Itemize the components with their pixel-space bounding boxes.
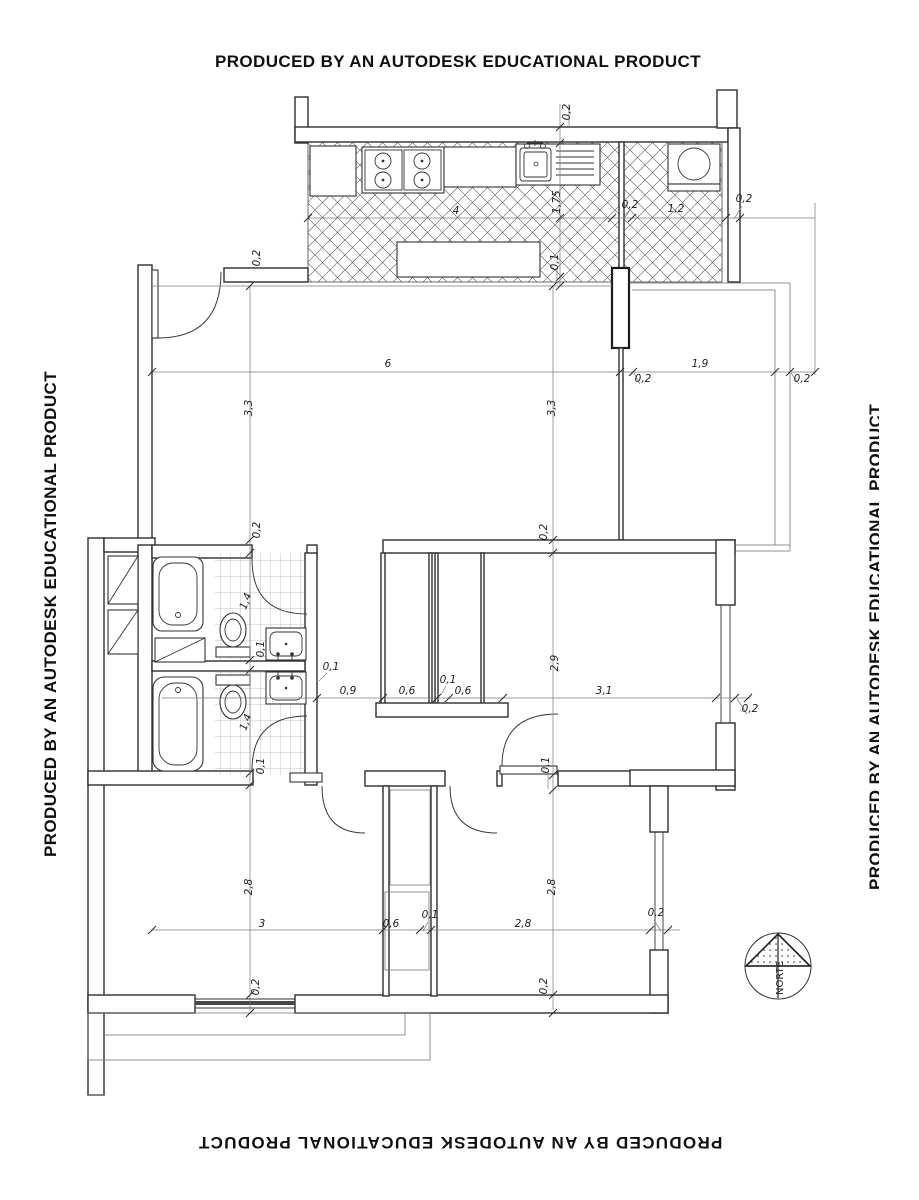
closet-compartment-bottom [385,892,429,970]
dim-label: 2,8 [515,918,532,930]
pillar [612,268,629,348]
bedroom1-top-wall [383,540,735,553]
bedroom1-closet-mid1 [429,553,432,705]
dim-label: 0,2 [250,978,262,995]
bedroom1-window [721,605,730,723]
bedroom-right-door [450,786,497,833]
dim-label: 4 [453,205,460,217]
kitchen-top-wall [295,127,728,142]
dim-label: 0,1 [422,909,439,921]
sink [266,628,306,660]
dim-label: 3,1 [596,685,613,697]
dim-label: 0,1 [540,757,552,774]
dim-label: 3,3 [243,400,255,417]
bedroom-left-door [290,773,365,833]
dim-label: 0,6 [455,685,472,697]
closet-column-left [383,786,389,996]
hallway-left-wall [305,553,317,785]
floor-plan-svg: 0,2 4 1,75 0,2 1,2 0,2 0,1 0,2 6 0,2 1,9… [0,0,919,1200]
bedroom1-closet-mid2 [435,553,438,705]
living-right-thin-wall [619,348,623,540]
kitchen-right-wall [728,128,740,282]
dim-label: 0,1 [255,641,267,658]
dim-label: 3 [259,918,266,930]
dim-label: 0,2 [742,703,759,715]
closet-compartment-top [390,790,430,885]
washing-machine [668,144,720,191]
dim-label: 6 [385,358,392,370]
dim-label: 0,2 [561,103,573,120]
bathtub [153,677,203,771]
service-shafts [108,556,138,654]
kitchen-counter-left [310,146,356,196]
dim-label: 0,6 [399,685,416,697]
closet-column-right [431,786,437,996]
bottom-left-window [195,999,295,1008]
bedroom1-closet-shelf [376,703,508,717]
dim-label: 0,1 [549,254,561,271]
kitchen-partition-wall [619,142,624,282]
dim-label: 1,75 [551,190,563,214]
sink [266,672,306,704]
bathroom-left-wall [138,545,152,775]
bottom-wall-left [88,995,195,1013]
dim-label: 0,2 [736,193,753,205]
kitchen-counter-mid [444,147,516,187]
dim-label: 0,6 [383,918,400,930]
dim-label: 2,8 [243,878,255,895]
dim-label: 0,2 [251,521,263,538]
dim-label: 0,1 [323,661,340,673]
dim-label: 2,9 [549,654,561,671]
dim-label: 0,2 [251,249,263,266]
kitchen [295,90,740,540]
dim-label: 0,2 [538,977,550,994]
bottom-wall-right [295,995,668,1013]
dim-label: 0,2 [635,373,652,385]
bedroom1-right-wall-upper [716,540,735,605]
living-top-wall [224,268,308,282]
kitchen-island-counter [397,242,540,277]
north-compass: NORTE [745,933,811,999]
left-exterior-wall-upper [138,265,152,545]
dim-label: 0,2 [794,373,811,385]
dim-label: 0,2 [622,199,639,211]
compass-label: NORTE [775,961,786,995]
bedroom1-closet-left [381,553,385,705]
stove [362,147,444,193]
hall-bottom-wall-left [365,771,445,786]
cabinet-diagonal [155,638,205,662]
lower-ledge [88,1013,430,1060]
dim-label: 0,2 [648,907,665,919]
dim-label: 1,9 [692,358,709,370]
balcony-outline [630,283,790,551]
bathtub [153,557,203,631]
dim-label: 0,1 [255,758,267,775]
kitchen-sink [516,140,600,185]
kitchen-right-stub-wall [717,90,737,128]
bedroom2-top-wall [630,770,735,786]
dim-label: 2,8 [546,878,558,895]
bedroom2-window [655,832,663,950]
dim-label: 1,2 [668,203,685,215]
bedroom1-closet-right [481,553,484,705]
bedroom2-right-wall-upper [650,786,668,832]
dim-label: 0,9 [340,685,357,697]
entrance-door [152,270,221,338]
dim-label: 0,2 [538,523,550,540]
dim-label: 3,3 [546,400,558,417]
